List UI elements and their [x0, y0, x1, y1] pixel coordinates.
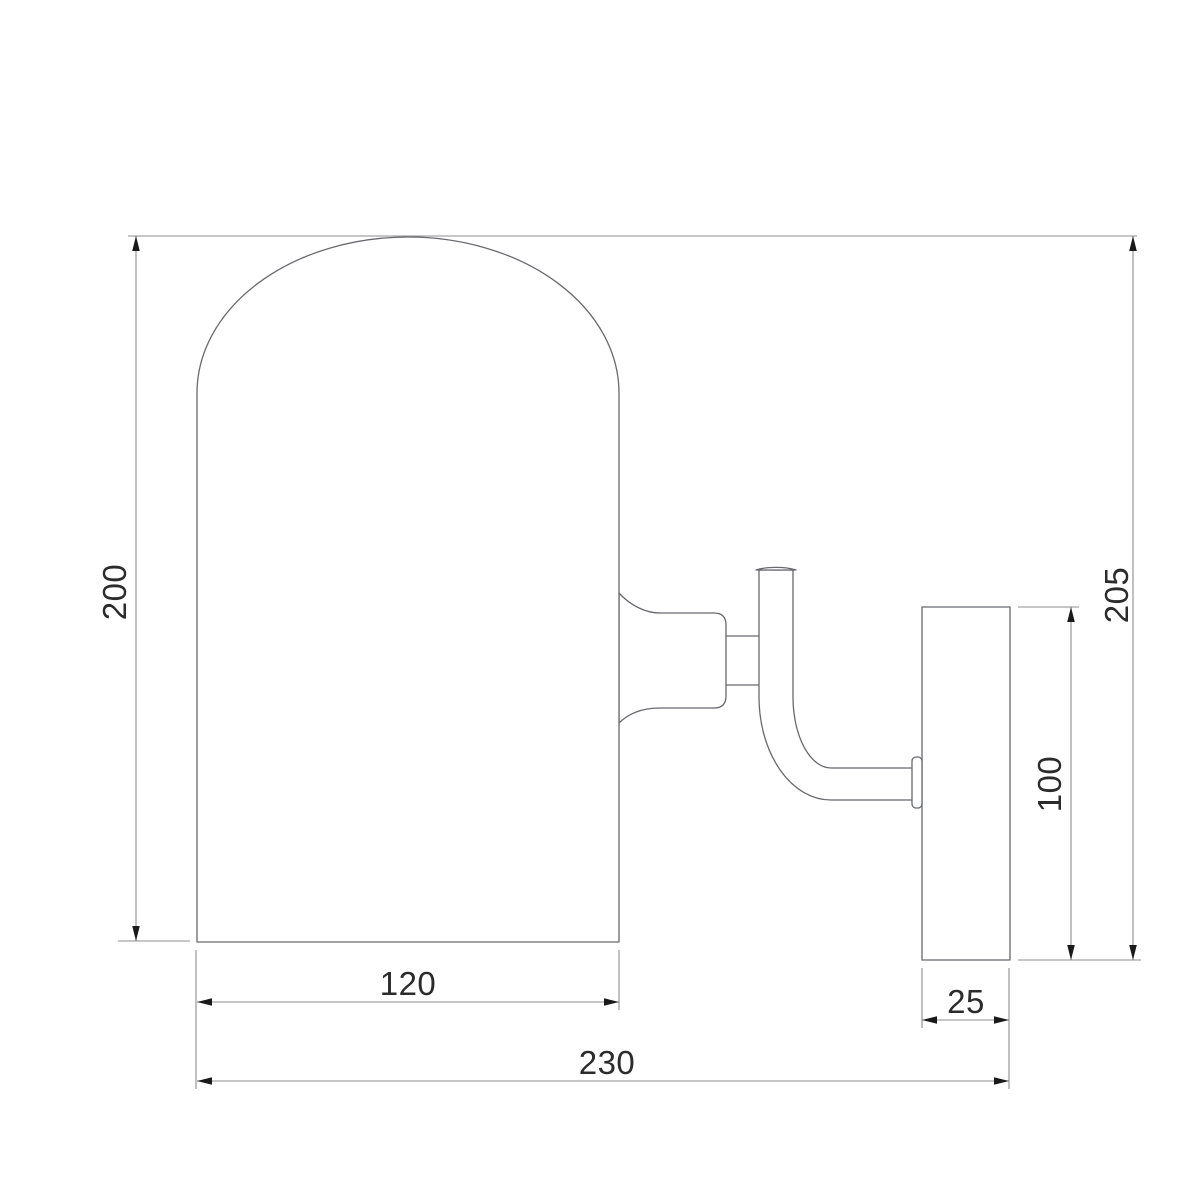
wall-mount-plate [922, 607, 1010, 960]
arrow-up-icon [132, 236, 140, 251]
dim-label-shade-height: 200 [96, 564, 133, 621]
arrow-right-icon [994, 1077, 1009, 1085]
dim-label-overall-height: 205 [1098, 567, 1135, 624]
arrow-right-icon [994, 1016, 1009, 1024]
wall-lamp-dimension-drawing: 200 205 100 120 25 230 [0, 0, 1200, 1200]
dim-label-shade-width: 120 [380, 965, 437, 1002]
dim-label-backplate-depth: 25 [947, 983, 985, 1020]
arrow-down-icon [132, 926, 140, 941]
pipe-end-cap [756, 567, 796, 570]
arrow-left-icon [197, 998, 212, 1006]
dim-label-overall-width: 230 [579, 1044, 636, 1081]
arrow-down-icon [1067, 945, 1075, 960]
support-pipe-arm [759, 570, 914, 800]
arrow-down-icon [1129, 945, 1137, 960]
technical-drawing-canvas: 200 205 100 120 25 230 [0, 0, 1200, 1200]
dim-label-backplate-height: 100 [1031, 756, 1068, 813]
arrow-up-icon [1129, 236, 1137, 251]
arrow-left-icon [922, 1016, 937, 1024]
arrow-left-icon [197, 1077, 212, 1085]
object-outline [197, 237, 1010, 960]
arrow-right-icon [604, 998, 619, 1006]
lamp-shade [197, 237, 619, 942]
arrow-up-icon [1067, 607, 1075, 622]
arm-flange [912, 757, 922, 808]
shade-neck-cone [619, 593, 726, 723]
